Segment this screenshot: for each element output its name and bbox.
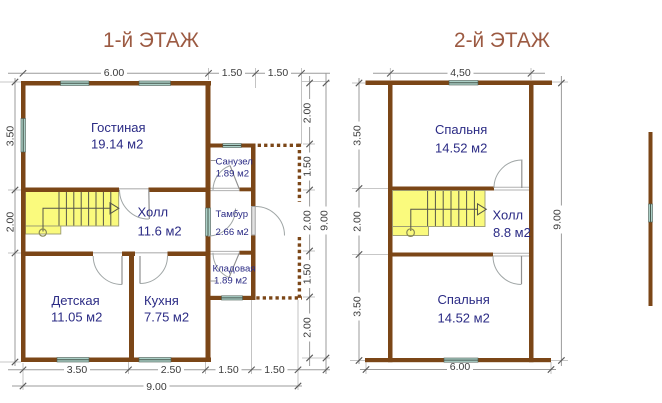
svg-text:8.8 м2: 8.8 м2 — [493, 225, 531, 240]
svg-text:11.6 м2: 11.6 м2 — [138, 223, 182, 238]
svg-text:Санузел: Санузел — [216, 157, 253, 168]
svg-text:2.66 м2: 2.66 м2 — [216, 227, 249, 238]
svg-text:Кухня: Кухня — [144, 293, 179, 308]
svg-text:Тамбур: Тамбур — [216, 209, 249, 220]
svg-text:1.89 м2: 1.89 м2 — [216, 169, 249, 180]
svg-text:Холл: Холл — [138, 204, 169, 219]
svg-text:9.00: 9.00 — [146, 381, 167, 393]
svg-text:14.52 м2: 14.52 м2 — [438, 311, 490, 326]
svg-text:Спальня: Спальня — [438, 292, 490, 307]
svg-text:9.00: 9.00 — [552, 209, 564, 230]
svg-text:2.00: 2.00 — [302, 210, 314, 231]
svg-text:3.50: 3.50 — [352, 296, 364, 317]
svg-text:2.00: 2.00 — [5, 212, 17, 233]
svg-text:6.00: 6.00 — [104, 67, 125, 79]
svg-text:9.00: 9.00 — [319, 210, 331, 231]
svg-text:19.14 м2: 19.14 м2 — [91, 137, 143, 152]
svg-text:2.50: 2.50 — [161, 364, 182, 376]
svg-text:1.50: 1.50 — [218, 364, 239, 376]
svg-text:Детская: Детская — [52, 293, 100, 308]
svg-text:3.50: 3.50 — [67, 364, 88, 376]
svg-text:2-й ЭТАЖ: 2-й ЭТАЖ — [454, 29, 550, 52]
svg-text:3.50: 3.50 — [352, 125, 364, 146]
svg-text:1.50: 1.50 — [222, 67, 243, 79]
svg-text:2.00: 2.00 — [352, 211, 364, 232]
svg-text:14.52 м2: 14.52 м2 — [435, 140, 487, 155]
svg-text:1.50: 1.50 — [302, 156, 314, 177]
svg-text:7.75 м2: 7.75 м2 — [144, 310, 189, 325]
svg-text:4,50: 4,50 — [450, 67, 471, 79]
svg-text:2.00: 2.00 — [302, 103, 314, 124]
svg-text:Гостиная: Гостиная — [91, 120, 146, 135]
svg-text:Спальня: Спальня — [435, 122, 487, 137]
svg-text:2.00: 2.00 — [302, 317, 314, 338]
svg-text:1.50: 1.50 — [268, 67, 289, 79]
svg-text:1.89 м2: 1.89 м2 — [214, 276, 247, 287]
svg-text:1.50: 1.50 — [302, 264, 314, 285]
svg-text:Кладовая: Кладовая — [213, 264, 256, 275]
svg-text:3.50: 3.50 — [5, 126, 17, 147]
svg-text:1.50: 1.50 — [264, 364, 285, 376]
svg-text:6.00: 6.00 — [450, 361, 471, 373]
svg-text:Холл: Холл — [493, 208, 524, 223]
svg-text:11.05 м2: 11.05 м2 — [51, 310, 102, 325]
svg-text:1-й ЭТАЖ: 1-й ЭТАЖ — [103, 29, 199, 52]
